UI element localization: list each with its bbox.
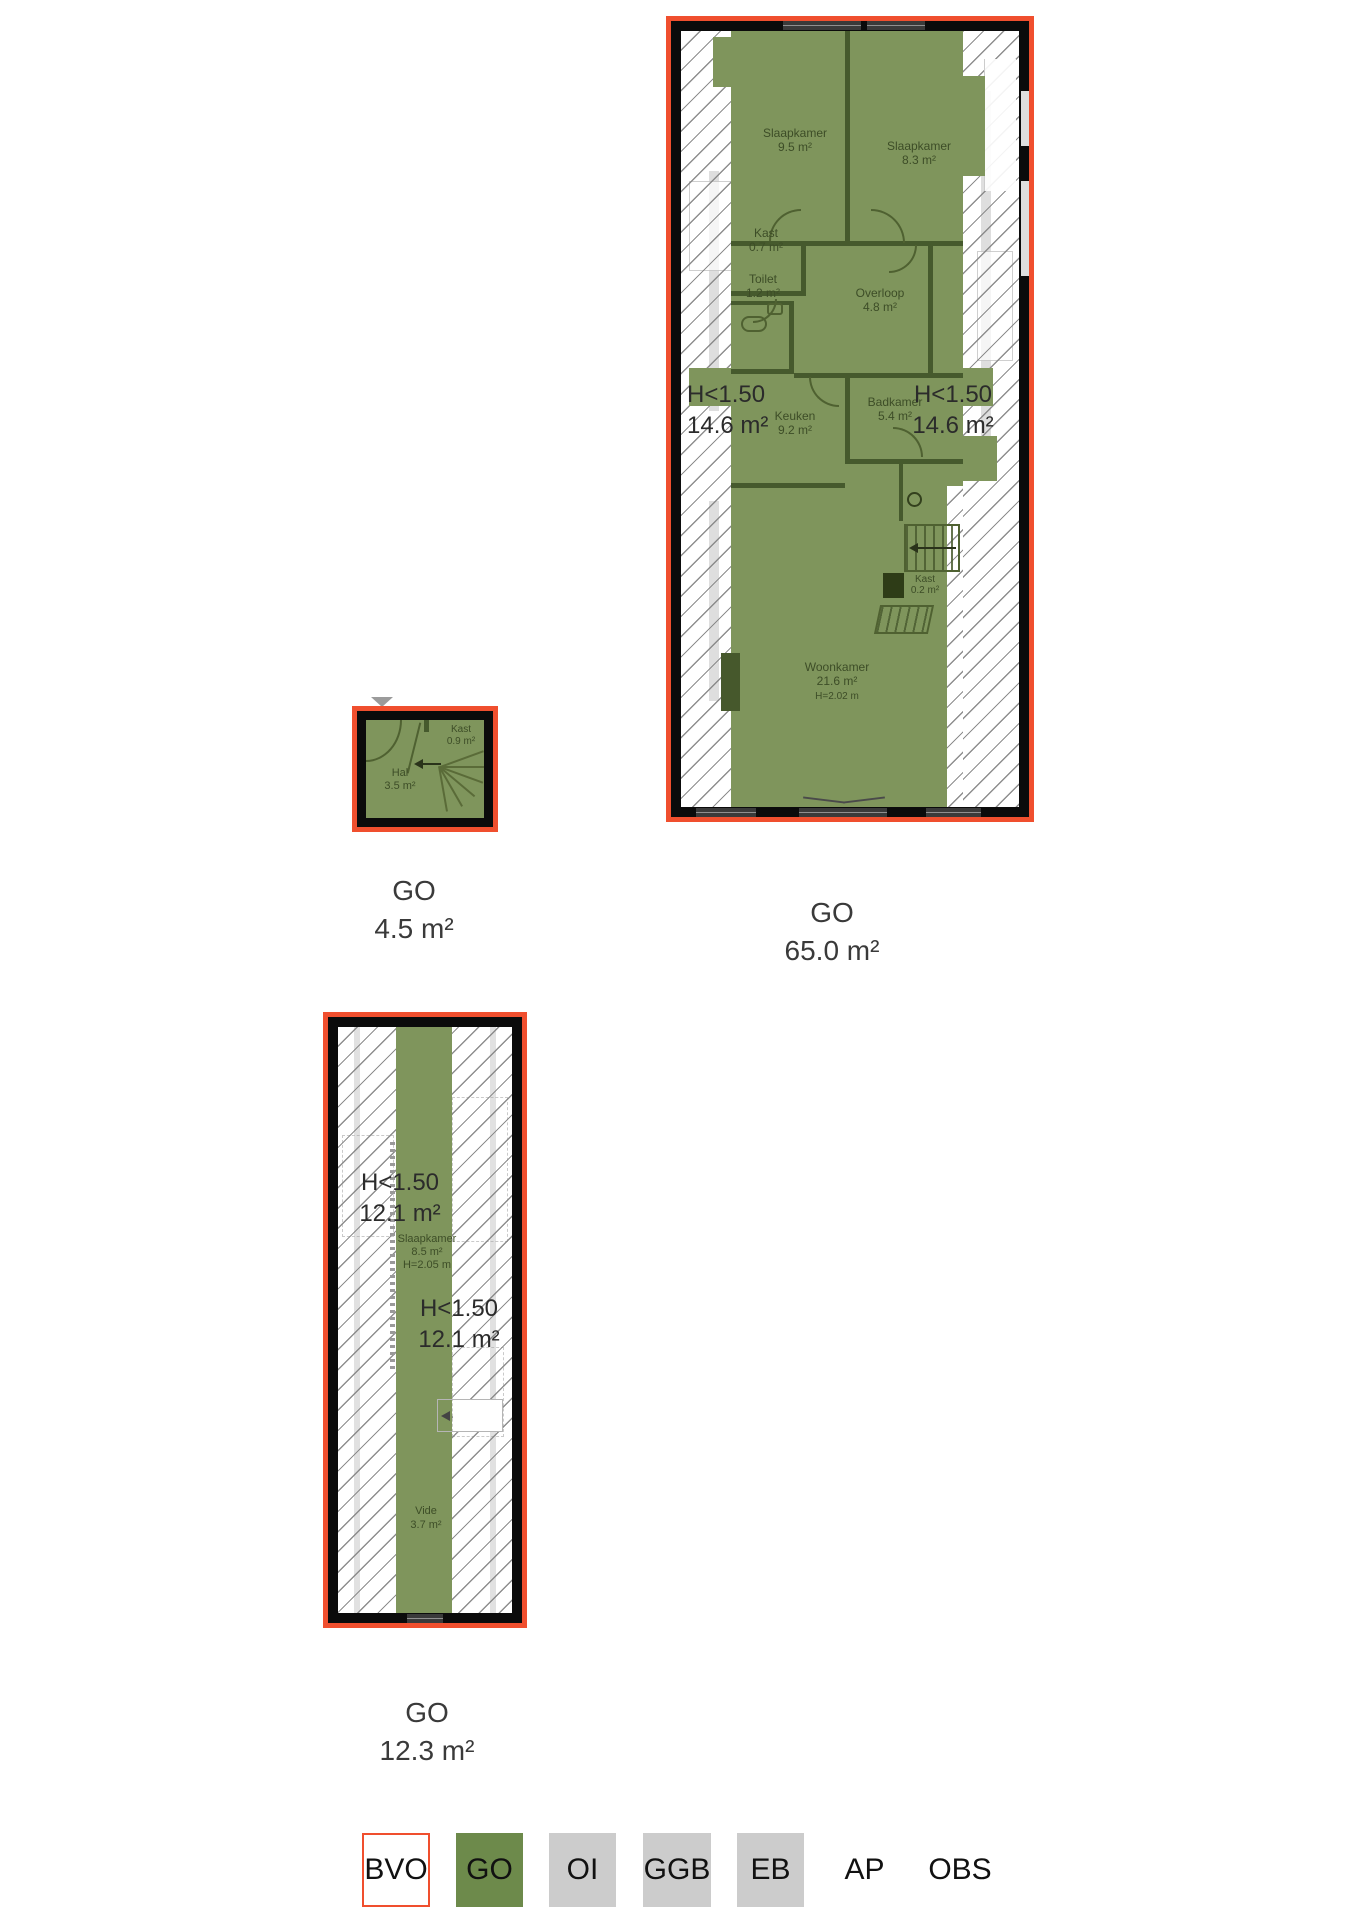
h150-label-right: H<1.5014.6 m² [912,379,993,441]
stair-direction-line [918,547,956,549]
room-label-woonkamer: Woonkamer21.6 m²H=2.02 m [805,660,869,704]
h150-line2: 12.1 m² [418,1326,499,1353]
room-label-keuken: Keuken9.2 m² [775,409,816,437]
room-name: Slaapkamer [398,1233,457,1245]
window-mark [799,808,887,817]
go-value: 4.5 m² [374,913,453,944]
room-area: 0.2 m² [911,585,939,596]
legend-item-go: GO [456,1833,523,1907]
stair-line [440,750,484,767]
legend-item-ap: AP [831,1833,898,1907]
room-label-kast2: Kast0.2 m² [911,574,939,596]
room-area: 3.7 m² [410,1519,441,1531]
legend-item-eb: EB [737,1833,804,1907]
floorplan-45: Kast0.9 m² Hal3.5 m² [352,706,498,832]
h150-line2: 14.6 m² [687,412,768,439]
go-value: 12.3 m² [380,1735,475,1766]
room-name: Kast [915,574,935,585]
go-area-tab [963,436,997,481]
room-name: Vide [415,1505,437,1517]
wall-segment [789,301,794,373]
room-name: Slaapkamer [887,139,951,153]
room-area: 9.2 m² [778,423,812,437]
room-height: H=2.05 m [403,1259,451,1271]
room-area: 0.7 m² [749,240,783,254]
wall-segment [883,573,904,598]
room-name: Woonkamer [805,660,869,674]
room-name: Toilet [749,272,777,286]
window-mark [407,1614,443,1623]
legend-label: EB [750,1853,790,1887]
room-name: Kast [451,724,471,735]
room-height: H=2.02 m [815,691,859,702]
h150-line2: 12.1 m² [359,1200,440,1227]
legend-label: BVO [364,1853,427,1887]
wall-segment [731,483,845,488]
h150-label-right: H<1.5012.1 m² [418,1293,499,1355]
legend-item-obs: OBS [925,1833,995,1907]
room-label-hal: Hal3.5 m² [384,767,415,793]
h150-line1: H<1.50 [914,381,992,408]
h150-line2: 14.6 m² [912,412,993,439]
go-value: 65.0 m² [785,935,880,966]
go-area-tab [963,76,985,176]
ghost-room [984,59,1016,191]
floorplan-report-page: Slaapkamer9.5 m² Slaapkamer8.3 m² Kast0.… [0,0,1358,1920]
boiler-fixture [907,492,922,507]
go-code: GO [392,875,436,906]
legend-label: GO [466,1853,513,1887]
window-mark [783,21,861,30]
window-mark [1021,91,1029,146]
room-area: 5.4 m² [878,409,912,423]
window-mark [867,21,925,30]
window-mark [926,808,981,817]
h150-label-left: H<1.5014.6 m² [687,379,768,441]
go-code: GO [405,1697,449,1728]
room-label-kast: Kast0.9 m² [447,724,475,748]
floorplan-123-interior: H<1.5012.1 m² Slaapkamer8.5 m²H=2.05 m H… [338,1027,512,1613]
room-name: Kast [754,226,778,240]
room-name: Keuken [775,409,816,423]
room-label-slaapkamer2: Slaapkamer8.3 m² [887,139,951,167]
wall-segment [845,459,963,464]
room-area: 21.6 m² [817,674,858,688]
legend-item-bvo: BVO [362,1833,430,1907]
wall-segment [899,464,903,521]
room-label-vide: Vide3.7 m² [410,1504,441,1532]
h150-label-left: H<1.5012.1 m² [359,1167,440,1229]
room-area: 1.2 m² [746,286,780,300]
go-caption-65: GO65.0 m² [785,894,880,970]
room-label-toilet: Toilet1.2 m² [746,272,780,300]
room-area: 8.3 m² [902,153,936,167]
chimney-block [721,653,740,711]
floorplan-123: H<1.5012.1 m² Slaapkamer8.5 m²H=2.05 m H… [323,1012,527,1628]
legend-item-ggb: GGB [643,1833,711,1907]
room-label-kast1: Kast0.7 m² [749,226,783,254]
floorplan-45-interior: Kast0.9 m² Hal3.5 m² [366,720,484,818]
room-area: 3.5 m² [384,780,415,792]
h150-line1: H<1.50 [687,381,765,408]
wall-segment [731,369,794,374]
room-area: 4.8 m² [863,300,897,314]
stair-line [440,766,484,768]
go-caption-123: GO12.3 m² [380,1694,475,1770]
legend-label: AP [844,1853,884,1887]
room-area: 0.9 m² [447,736,475,747]
go-area-tab [713,37,731,87]
room-label-slaapkamer1: Slaapkamer9.5 m² [763,126,827,154]
window-mark [1021,181,1029,276]
room-area: 9.5 m² [778,140,812,154]
room-label-slaapkamer: Slaapkamer8.5 m²H=2.05 m [398,1233,457,1272]
legend-label: OBS [928,1853,991,1887]
go-caption-45: GO4.5 m² [374,872,453,948]
legend-label: GGB [644,1853,711,1887]
floorplan-65-interior: Slaapkamer9.5 m² Slaapkamer8.3 m² Kast0.… [681,31,1019,807]
room-name: Hal [392,767,409,779]
wall-segment [928,243,933,375]
wall-segment [845,31,850,244]
room-label-overloop: Overloop4.8 m² [856,286,905,314]
stair-direction-arrow [441,1411,450,1421]
go-code: GO [810,897,854,928]
wall-segment [424,720,429,732]
h150-line1: H<1.50 [361,1169,439,1196]
wall-segment [845,376,850,464]
h150-line1: H<1.50 [420,1295,498,1322]
staircase-lower [874,605,934,634]
stair-direction-line [423,763,441,765]
stair-direction-arrow [909,543,918,553]
wall-segment [801,241,806,296]
window-mark [696,808,756,817]
room-name: Overloop [856,286,905,300]
legend-label: OI [567,1853,599,1887]
floorplan-65: Slaapkamer9.5 m² Slaapkamer8.3 m² Kast0.… [666,16,1034,822]
room-name: Slaapkamer [763,126,827,140]
room-area: 8.5 m² [411,1246,442,1258]
legend-item-oi: OI [549,1833,616,1907]
door-arc [366,720,402,762]
